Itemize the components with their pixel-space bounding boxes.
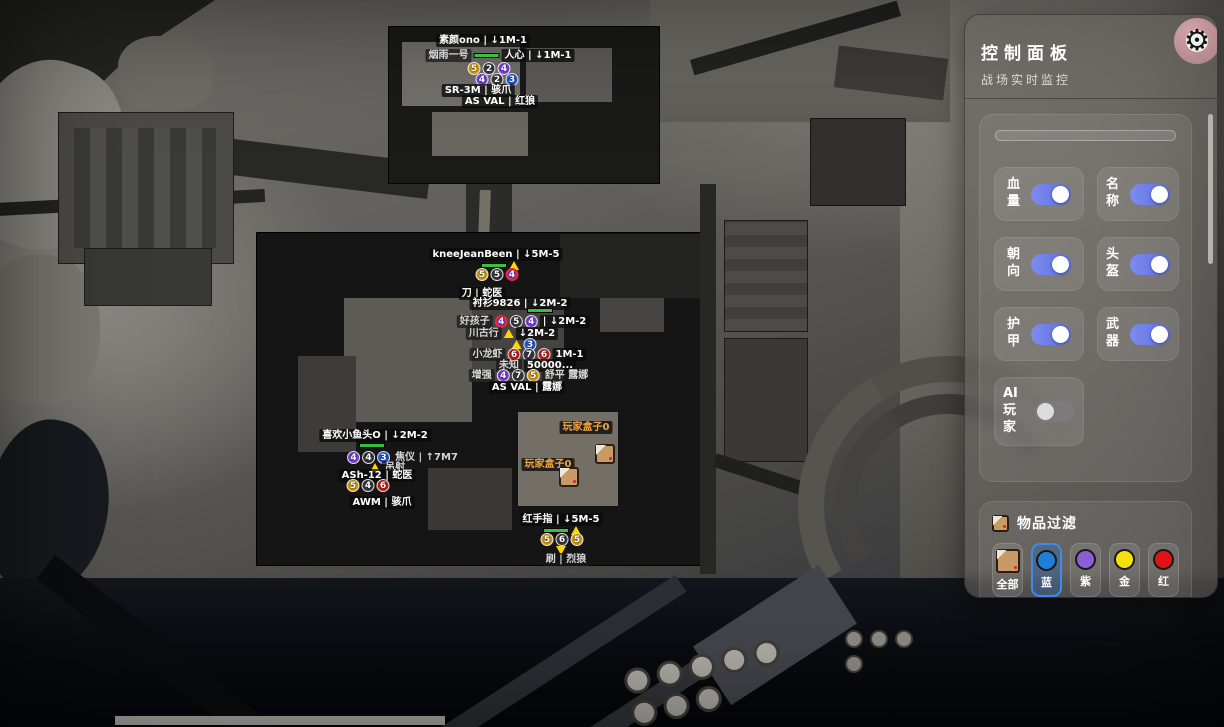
panel-header: 控制面板 战场实时监控 ⚙	[965, 15, 1217, 99]
toggle-helmet[interactable]	[1130, 254, 1170, 275]
direction-arrow-icon	[504, 329, 514, 338]
toggle-label-armor: 护甲	[1007, 317, 1023, 351]
map-label-row: AWM | 骇爪	[350, 496, 415, 509]
filter-red[interactable]: 红	[1148, 543, 1179, 597]
player-label: 衬衫9826 | ↓2M-2	[470, 297, 571, 310]
purple-rarity-dot	[1075, 549, 1096, 570]
item-filter-header: 物品过滤	[992, 513, 1179, 533]
player-label: 素颜ono | ↓1M-1	[436, 34, 530, 47]
tier-marker: 5	[347, 479, 360, 492]
loot-box-icon	[996, 549, 1020, 573]
toggle-tile-armor: 护甲	[994, 307, 1084, 361]
tier-marker: 4	[347, 451, 360, 464]
filter-blue[interactable]: 蓝	[1031, 543, 1062, 597]
filter-options: 全部蓝紫金红	[992, 543, 1179, 597]
loot-box-icon	[595, 444, 615, 464]
app: 素颜ono | ↓1M-1烟雨一号人心 | ↓1M-1524423SR-3M |…	[0, 0, 1224, 727]
panel-scrollbar[interactable]	[1208, 114, 1213, 264]
sub-label: 烟雨一号	[425, 49, 471, 62]
toggle-tile-health: 血量	[994, 167, 1084, 221]
tier-marker: 5	[541, 533, 554, 546]
toggle-tile-weapon: 武器	[1097, 307, 1179, 361]
player-label: AWM | 骇爪	[350, 496, 415, 509]
map-label-row	[559, 467, 579, 487]
player-label: kneeJeanBeen | ↓5M-5	[429, 248, 562, 261]
health-bar	[527, 308, 553, 313]
map-label-row: AS VAL | 露娜	[489, 381, 565, 394]
sub-label: 川古行	[466, 327, 502, 340]
map-label-row	[595, 444, 615, 464]
toggle-armor[interactable]	[1031, 324, 1071, 345]
blue-rarity-dot	[1036, 550, 1057, 571]
tier-marker: 4	[506, 268, 519, 281]
loot-box-icon	[559, 467, 579, 487]
map-label-row: kneeJeanBeen | ↓5M-5	[429, 248, 562, 261]
map-label-row	[527, 308, 553, 313]
toggle-direction[interactable]	[1031, 254, 1071, 275]
player-label: 喜欢小鱼头O | ↓2M-2	[319, 429, 431, 442]
filter-label-all: 全部	[997, 576, 1019, 592]
tier-marker: 4	[362, 479, 375, 492]
panel-subtitle: 战场实时监控	[981, 71, 1071, 88]
map-label-row: 喜欢小鱼头O | ↓2M-2	[319, 429, 431, 442]
player-label: AS VAL | 红狼	[462, 95, 538, 108]
map-label-row: 刷 | 烈狼	[543, 553, 590, 566]
item-filter-card: 物品过滤 全部蓝紫金红 ▾	[979, 501, 1192, 598]
player-label: 红手指 | ↓5M-5	[519, 513, 602, 526]
tier-marker: 5	[571, 533, 584, 546]
map-label-row	[359, 443, 385, 448]
toggle-tile-helmet: 头盔	[1097, 237, 1179, 291]
gear-icon: ⚙	[1184, 27, 1210, 56]
toggle-label-weapon: 武器	[1106, 317, 1122, 351]
toggle-health[interactable]	[1031, 184, 1071, 205]
filter-gold[interactable]: 金	[1109, 543, 1140, 597]
toggle-label-direction: 朝向	[1007, 247, 1023, 281]
loot-label: 玩家盒子0	[560, 421, 613, 434]
toggle-label-health: 血量	[1007, 177, 1023, 211]
filter-all[interactable]: 全部	[992, 543, 1023, 597]
red-rarity-dot	[1153, 549, 1174, 570]
player-label: AS VAL | 露娜	[489, 381, 565, 394]
toggle-label-name: 名称	[1106, 177, 1122, 211]
map-label-row: 565	[541, 533, 584, 546]
tier-marker: 5	[476, 268, 489, 281]
map-label-row: 554	[476, 268, 519, 281]
settings-button[interactable]: ⚙	[1174, 18, 1218, 64]
item-filter-title: 物品过滤	[1017, 513, 1077, 533]
toggle-grid: 血量名称朝向头盔护甲武器AI玩家	[994, 167, 1177, 446]
filter-label-purple: 紫	[1080, 573, 1091, 589]
toggle-ai-player[interactable]	[1035, 401, 1075, 422]
filter-label-blue: 蓝	[1041, 574, 1052, 590]
health-bar	[359, 443, 385, 448]
health-bar	[473, 53, 499, 58]
sub-label: 刷 | 烈狼	[543, 553, 590, 566]
toggle-name[interactable]	[1130, 184, 1170, 205]
tier-marker: 6	[377, 479, 390, 492]
map-label-row: AS VAL | 红狼	[462, 95, 538, 108]
toggle-tile-ai-player: AI玩家	[994, 377, 1084, 446]
map-label-row: 玩家盒子0	[560, 421, 613, 434]
filter-purple[interactable]: 紫	[1070, 543, 1101, 597]
map-label-row: 衬衫9826 | ↓2M-2	[470, 297, 571, 310]
map-label-row: 546	[347, 479, 390, 492]
toggle-weapon[interactable]	[1130, 324, 1170, 345]
tier-marker: 5	[491, 268, 504, 281]
map-label-row: 烟雨一号人心 | ↓1M-1	[425, 49, 574, 62]
box-icon	[992, 515, 1009, 532]
toggle-tile-direction: 朝向	[994, 237, 1084, 291]
tier-marker: 6	[556, 533, 569, 546]
map-label-row: 红手指 | ↓5M-5	[519, 513, 602, 526]
filter-label-red: 红	[1158, 573, 1169, 589]
toggle-tile-name: 名称	[1097, 167, 1179, 221]
control-panel: 控制面板 战场实时监控 ⚙ 血量名称朝向头盔护甲武器AI玩家 物品过滤 全部蓝紫…	[964, 14, 1218, 598]
map-label-row: 素颜ono | ↓1M-1	[436, 34, 530, 47]
toggle-label-helmet: 头盔	[1106, 247, 1122, 281]
filter-label-gold: 金	[1119, 573, 1130, 589]
toggle-label-ai-player: AI玩家	[1003, 386, 1027, 437]
collapse-bar[interactable]	[995, 130, 1176, 141]
gold-rarity-dot	[1114, 549, 1135, 570]
player-label: 人心 | ↓1M-1	[501, 49, 574, 62]
panel-title: 控制面板	[981, 39, 1073, 64]
display-settings-card: 血量名称朝向头盔护甲武器AI玩家	[979, 114, 1192, 482]
